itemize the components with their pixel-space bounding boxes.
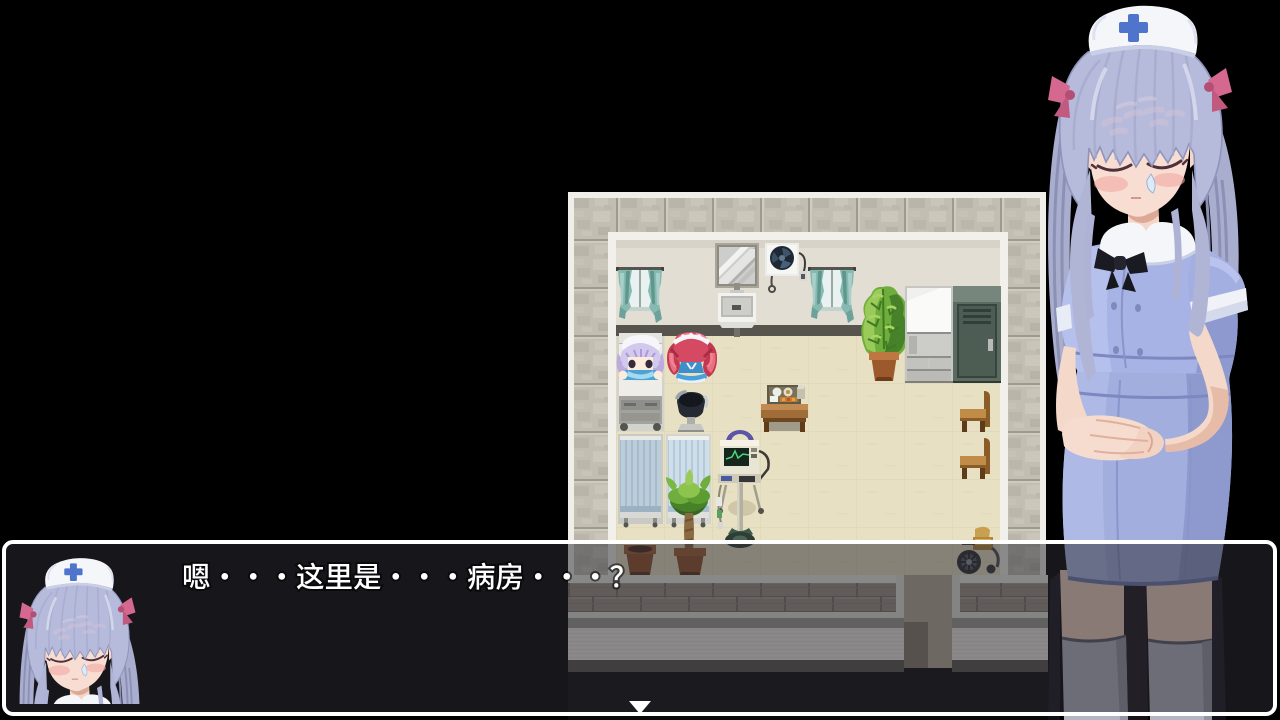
svg-text:嗯・・・这里是・・・病房・・・？: 嗯・・・这里是・・・病房・・・？ bbox=[182, 555, 638, 596]
